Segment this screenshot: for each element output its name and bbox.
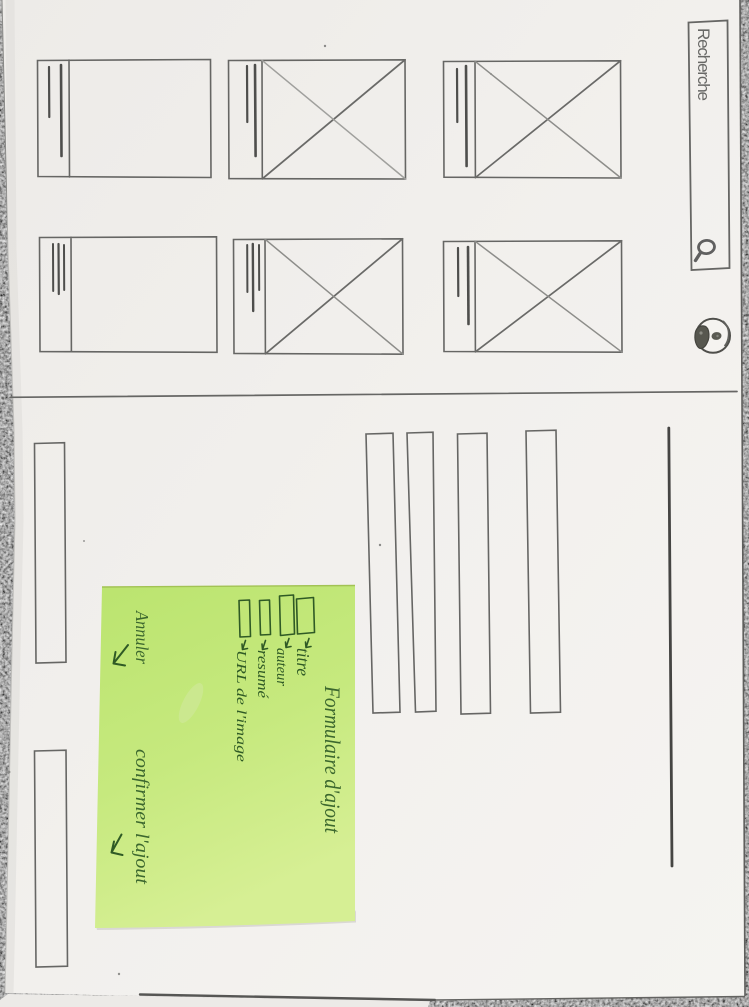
svg-text:Recherche: Recherche bbox=[694, 28, 713, 101]
svg-text:URL de l'image: URL de l'image bbox=[233, 650, 248, 762]
svg-text:resumé: resumé bbox=[254, 650, 270, 699]
svg-text:Formulaire d'ajout: Formulaire d'ajout bbox=[320, 685, 345, 834]
svg-text:titre: titre bbox=[293, 648, 313, 676]
svg-text:auteur: auteur bbox=[273, 648, 289, 686]
svg-text:confirmer l'ajout: confirmer l'ajout bbox=[131, 749, 152, 885]
svg-text:Annuler: Annuler bbox=[132, 610, 152, 665]
